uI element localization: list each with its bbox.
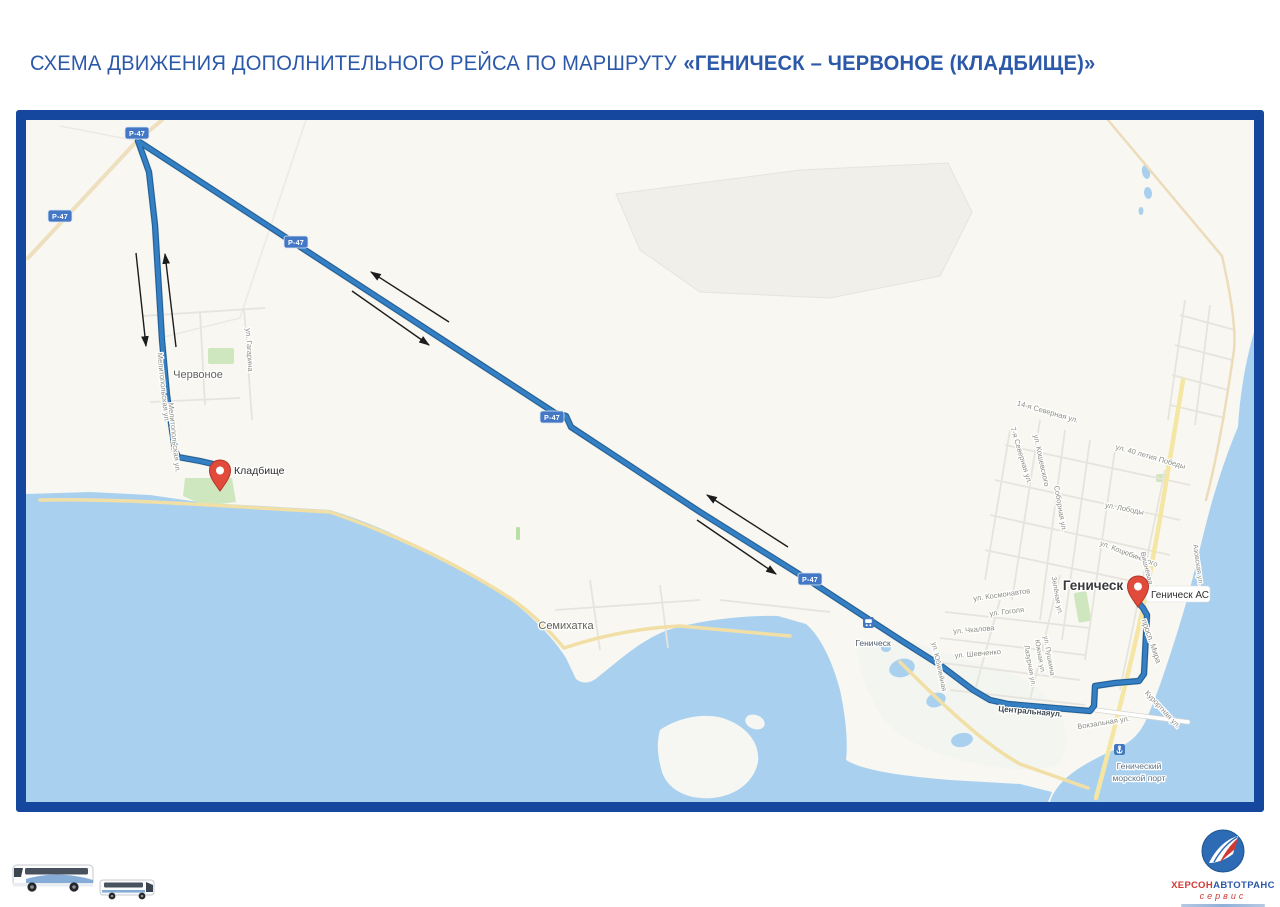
company-logo: ХЕРСОНАВТОТРАНС сервис — [1168, 828, 1278, 907]
bus-photos — [12, 860, 172, 902]
road-shield-r47: Р-47 — [540, 411, 564, 423]
logo-brand-blue: АВТОТРАНС — [1213, 880, 1275, 891]
road-shield-label: Р-47 — [52, 212, 68, 221]
road-shield-label: Р-47 — [288, 238, 304, 247]
page-title-route: «ГЕНИЧЕСК – ЧЕРВОНОЕ (КЛАДБИЩЕ)» — [683, 52, 1095, 75]
bus-station-pin-label: Геническ АС — [1151, 590, 1209, 601]
road-shield-r47: Р-47 — [798, 573, 822, 585]
road-shield-label: Р-47 — [129, 129, 145, 138]
village-label-semikhatka: Семихатка — [538, 620, 594, 632]
city-label-genichesk: Геническ — [1063, 578, 1124, 593]
bus-photo-small — [100, 880, 154, 899]
logo-brand-red: ХЕРСОН — [1171, 880, 1213, 891]
footer-buses — [12, 860, 172, 907]
sea-port-label-line2: морской порт — [1113, 773, 1166, 783]
road-shield-r47: Р-47 — [48, 210, 72, 222]
map-frame: Червоноеул. ГагаринаМелитопольская ул.Ме… — [16, 110, 1264, 812]
cemetery-pin-label: Кладбище — [234, 465, 285, 477]
logo-emblem-icon — [1200, 828, 1246, 874]
logo-subtitle: сервис — [1168, 891, 1278, 901]
logo-brand-name: ХЕРСОНАВТОТРАНС — [1168, 880, 1278, 891]
train-station-label: Геническ — [855, 638, 891, 648]
page-title: СХЕМА ДВИЖЕНИЯ ДОПОЛНИТЕЛЬНОГО РЕЙСА ПО … — [30, 52, 1095, 76]
bus-photo-large — [13, 865, 93, 892]
train-station-icon — [863, 617, 874, 628]
route-map: Червоноеул. ГагаринаМелитопольская ул.Ме… — [26, 120, 1254, 802]
page-title-prefix: СХЕМА ДВИЖЕНИЯ ДОПОЛНИТЕЛЬНОГО РЕЙСА ПО … — [30, 52, 677, 75]
road-shield-label: Р-47 — [802, 575, 818, 584]
road-shield-r47: Р-47 — [125, 127, 149, 139]
road-shield-r47: Р-47 — [284, 236, 308, 248]
village-label-chervone: Червоное — [173, 369, 223, 381]
sea-port-icon — [1114, 744, 1125, 755]
sea-port-label-line1: Генический — [1117, 761, 1162, 771]
road-shield-label: Р-47 — [544, 413, 560, 422]
